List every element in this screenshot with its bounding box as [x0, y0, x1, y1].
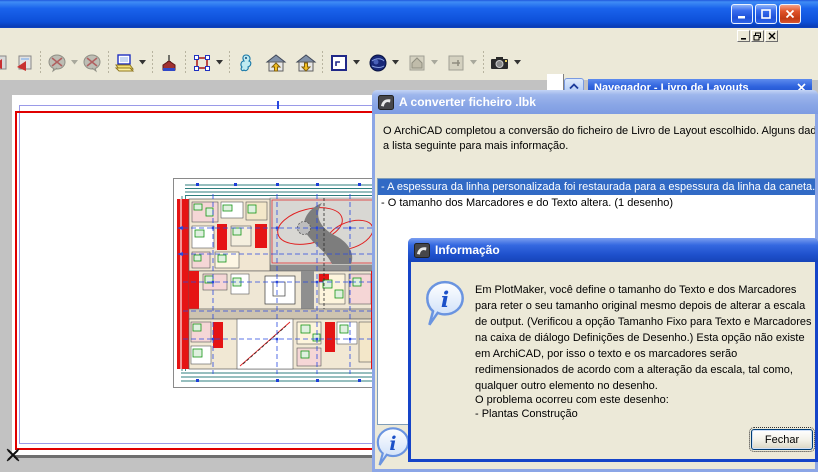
chevron-up-icon	[569, 83, 579, 90]
info-balloon-icon: i	[425, 280, 465, 330]
view-globe-icon[interactable]	[366, 50, 390, 76]
markup-dropdown-icon-disabled	[69, 50, 80, 76]
layout-settings-dropdown-icon[interactable]	[137, 50, 148, 76]
problem-drawing-name: - Plantas Construção	[475, 407, 578, 422]
mdi-close-icon	[768, 32, 776, 40]
information-paragraph: Em PlotMaker, você define o tamanho do T…	[475, 282, 815, 394]
go-up-story-icon[interactable]	[264, 50, 288, 76]
menu-bar	[0, 28, 818, 46]
markup-icon-disabled	[45, 50, 69, 76]
go-down-story-icon[interactable]	[294, 50, 318, 76]
section-icon-disabled	[444, 50, 468, 76]
toolbar-separator	[185, 51, 186, 75]
layout-settings-icon[interactable]	[113, 50, 137, 76]
camera-icon[interactable]	[488, 50, 512, 76]
svg-text:i: i	[441, 287, 449, 313]
converter-dialog-title: A converter ficheiro .lbk	[399, 95, 536, 109]
placed-drawing	[173, 178, 391, 388]
toolbar-separator	[40, 51, 41, 75]
maximize-button[interactable]	[755, 4, 777, 24]
toolbar-separator	[229, 51, 230, 75]
marquee-dropdown-icon[interactable]	[214, 50, 225, 76]
layout-icon[interactable]	[327, 50, 351, 76]
converter-message-line2: a lista seguinte para mais informação.	[383, 139, 815, 154]
maximize-icon	[760, 8, 772, 20]
mdi-minimize-button[interactable]	[737, 30, 750, 42]
section-dropdown-icon-disabled	[468, 50, 479, 76]
mdi-close-button[interactable]	[765, 30, 778, 42]
toolbar	[0, 45, 818, 81]
layout-dropdown-icon[interactable]	[351, 50, 362, 76]
toolbar-separator	[108, 51, 109, 75]
page-origin-marker	[6, 448, 20, 462]
information-dialog-titlebar[interactable]: Informação	[408, 238, 818, 262]
toolbar-separator	[152, 51, 153, 75]
close-icon	[784, 8, 796, 20]
plumb-reference-icon[interactable]	[157, 50, 181, 76]
information-dialog-icon	[414, 243, 430, 258]
list-item-line-weight[interactable]: - A espessura da linha personalizada foi…	[378, 179, 815, 195]
svg-text:i: i	[389, 433, 396, 455]
converter-message-line1: O ArchiCAD completou a conversão do fich…	[383, 124, 815, 139]
application-window: Navegador - Livro de Layouts A converter…	[0, 0, 818, 472]
list-item-marker-text-size[interactable]: - O tamanho dos Marcadores e do Texto al…	[378, 195, 815, 211]
close-button[interactable]	[779, 4, 801, 24]
navigator-preview-icon[interactable]	[234, 50, 258, 76]
model-icon-disabled	[405, 50, 429, 76]
add-to-publisher-icon[interactable]	[12, 50, 36, 76]
converter-dialog-icon	[378, 95, 394, 110]
info-balloon-icon: i	[376, 426, 410, 469]
model-dropdown-icon-disabled	[429, 50, 440, 76]
mdi-minimize-icon	[740, 32, 748, 40]
fechar-button[interactable]: Fechar	[751, 429, 813, 450]
add-to-publisher-partial-icon[interactable]	[0, 50, 12, 76]
toolbar-separator	[483, 51, 484, 75]
window-titlebar[interactable]	[0, 0, 818, 28]
toolbar-separator	[322, 51, 323, 75]
minimize-button[interactable]	[731, 4, 753, 24]
view-globe-dropdown-icon[interactable]	[390, 50, 401, 76]
problem-heading: O problema ocorreu com este desenho:	[475, 393, 669, 408]
information-dialog: Informação i Em PlotMaker, você define o…	[408, 238, 818, 462]
markup-2-icon-disabled	[80, 50, 104, 76]
converter-message: O ArchiCAD completou a conversão do fich…	[383, 124, 815, 154]
marquee-icon[interactable]	[190, 50, 214, 76]
converter-dialog-titlebar[interactable]: A converter ficheiro .lbk	[372, 90, 818, 114]
floor-plan-drawing	[173, 178, 391, 388]
minimize-icon	[736, 8, 748, 20]
mdi-restore-button[interactable]	[751, 30, 764, 42]
information-dialog-title: Informação	[435, 243, 500, 257]
information-dialog-body: i Em PlotMaker, você define o tamanho do…	[411, 262, 815, 459]
camera-dropdown-icon[interactable]	[512, 50, 523, 76]
guide-handle	[277, 101, 279, 109]
mdi-restore-icon	[753, 32, 762, 41]
